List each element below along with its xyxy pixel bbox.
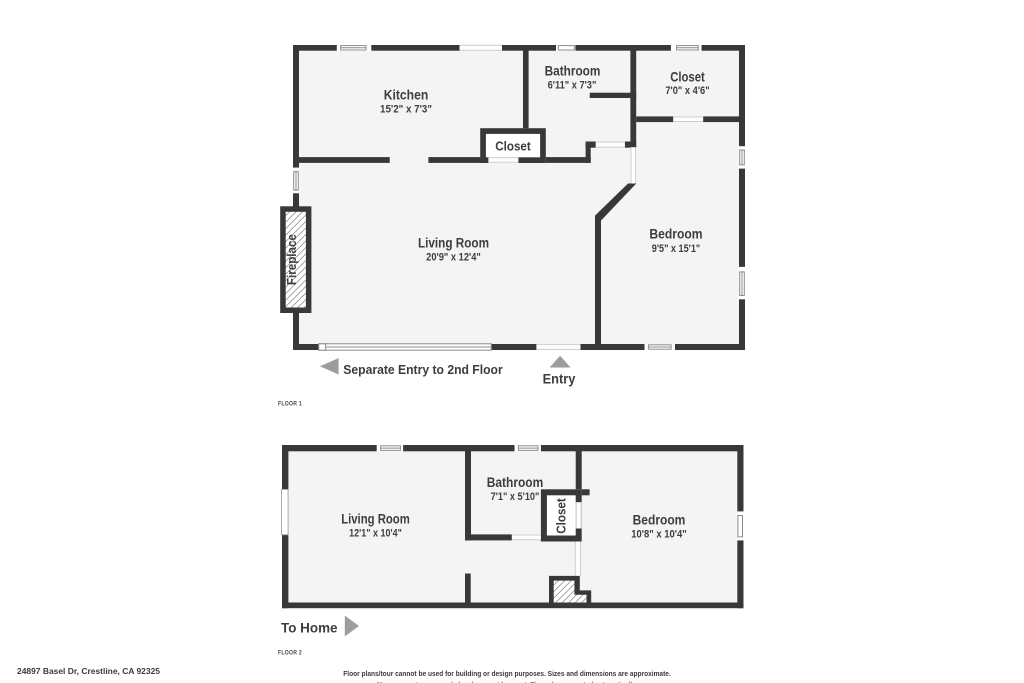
svg-text:Living Room: Living Room xyxy=(418,236,489,251)
svg-text:Bathroom: Bathroom xyxy=(545,64,601,79)
svg-text:7'0" x 4'6": 7'0" x 4'6" xyxy=(665,85,709,97)
svg-text:24897 Basel Dr, Crestline, CA: 24897 Basel Dr, Crestline, CA 92325 xyxy=(17,666,160,676)
svg-text:Entry: Entry xyxy=(543,372,576,387)
svg-text:Bathroom: Bathroom xyxy=(487,475,544,490)
svg-text:Kitchen: Kitchen xyxy=(384,88,429,103)
svg-text:Living Room: Living Room xyxy=(341,512,410,527)
svg-text:Separate Entry to 2nd Floor: Separate Entry to 2nd Floor xyxy=(343,362,502,377)
svg-text:Closet: Closet xyxy=(554,498,569,534)
svg-text:Fireplace: Fireplace xyxy=(285,234,299,285)
svg-text:20'9" x 12'4": 20'9" x 12'4" xyxy=(426,252,481,264)
svg-text:12'1" x 10'4": 12'1" x 10'4" xyxy=(349,528,402,540)
svg-text:To Home: To Home xyxy=(281,621,338,636)
svg-text:Closet: Closet xyxy=(670,70,705,85)
svg-text:9'5" x 15'1": 9'5" x 15'1" xyxy=(652,243,701,255)
svg-text:Bedroom: Bedroom xyxy=(649,227,702,242)
svg-text:Closet: Closet xyxy=(495,140,531,154)
svg-text:Floor plans/tour cannot be use: Floor plans/tour cannot be used for buil… xyxy=(343,669,671,678)
svg-text:7'1" x 5'10": 7'1" x 5'10" xyxy=(491,491,540,503)
svg-text:15'2" x 7'3": 15'2" x 7'3" xyxy=(380,104,432,116)
svg-text:10'8" x 10'4": 10'8" x 10'4" xyxy=(631,529,686,541)
svg-text:6'11" x 7'3": 6'11" x 7'3" xyxy=(548,80,597,92)
svg-text:FLOOR 2: FLOOR 2 xyxy=(278,650,302,657)
svg-text:Bedroom: Bedroom xyxy=(633,513,686,528)
svg-text:FLOOR 1: FLOOR 1 xyxy=(278,401,302,408)
